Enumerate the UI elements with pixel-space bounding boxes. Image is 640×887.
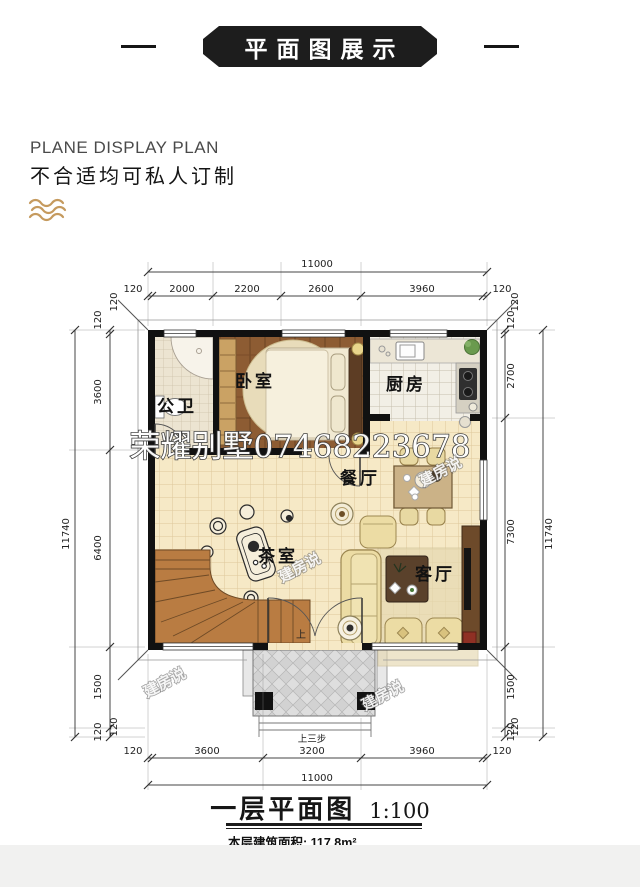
svg-text:120: 120 [492, 284, 511, 295]
svg-text:6400: 6400 [93, 535, 104, 560]
headboard [349, 348, 362, 440]
window [372, 643, 458, 650]
svg-text:120: 120 [93, 310, 104, 329]
stool [460, 417, 471, 428]
footer-band [0, 845, 640, 887]
dim-right-total: 11740 [544, 518, 555, 550]
svg-text:2600: 2600 [308, 284, 333, 295]
waves-icon [28, 198, 74, 226]
dining-chair [400, 508, 418, 525]
watermark-phone: 荣耀别墅07468223678 [130, 429, 471, 465]
svg-text:120: 120 [510, 717, 521, 736]
room-label-dining: 餐厅 [340, 468, 380, 489]
svg-text:120: 120 [123, 746, 142, 757]
pillow [331, 354, 345, 390]
window [282, 330, 345, 337]
svg-text:7300: 7300 [506, 519, 517, 544]
entry-steps-label: 上三步 [298, 734, 327, 745]
plan-scale: 1:100 [369, 799, 430, 823]
svg-text:3600: 3600 [194, 746, 219, 757]
svg-text:3960: 3960 [409, 746, 434, 757]
svg-text:1500: 1500 [506, 674, 517, 699]
subtitle-en: PLANE DISPLAY PLAN [30, 138, 219, 158]
svg-text:120: 120 [510, 292, 521, 311]
subtitle-cn: 不合适均可私人订制 [30, 160, 237, 189]
title-rule-thin [226, 828, 422, 829]
floor-plan: 上 [55, 250, 590, 790]
porch-column [255, 692, 273, 710]
svg-text:1500: 1500 [93, 674, 104, 699]
svg-text:120: 120 [123, 284, 142, 295]
dim-left-total: 11740 [61, 518, 72, 550]
svg-text:120: 120 [109, 292, 120, 311]
room-label-bathroom: 公卫 [157, 397, 197, 417]
title-rule-thick [226, 823, 422, 826]
svg-text:2000: 2000 [169, 284, 194, 295]
svg-text:3200: 3200 [299, 746, 324, 757]
svg-text:2200: 2200 [234, 284, 259, 295]
svg-text:120: 120 [93, 722, 104, 741]
room-label-living: 客厅 [414, 564, 455, 585]
banner-right-dash [484, 45, 519, 48]
room-label-kitchen: 厨房 [386, 374, 426, 395]
armchair [360, 516, 396, 548]
svg-text:2700: 2700 [506, 363, 517, 388]
window [164, 330, 196, 337]
svg-text:120: 120 [506, 310, 517, 329]
banner-left-dash [121, 45, 156, 48]
window [390, 330, 447, 337]
banner: 平面图展示 [203, 26, 437, 67]
svg-text:120: 120 [109, 717, 120, 736]
kitchen-counter [370, 339, 480, 363]
stair-up-label: 上 [296, 629, 306, 641]
svg-text:120: 120 [492, 746, 511, 757]
plan-title-block: 一层平面图 1:100 [0, 789, 640, 826]
svg-text:3600: 3600 [93, 379, 104, 404]
svg-text:3960: 3960 [409, 284, 434, 295]
dim-top-total: 11000 [301, 259, 333, 270]
window [480, 460, 487, 520]
tv [464, 548, 471, 610]
dining-chair [427, 508, 445, 525]
page: 平面图展示 PLANE DISPLAY PLAN 不合适均可私人订制 [0, 0, 640, 887]
bedside-lamp [352, 343, 364, 355]
pillow [331, 396, 345, 432]
room-label-bedroom: 卧室 [235, 371, 275, 392]
dim-bottom-total: 11000 [301, 773, 333, 784]
plan-title: 一层平面图 [210, 789, 355, 826]
banner-title: 平面图展示 [236, 30, 405, 64]
window [163, 643, 253, 650]
